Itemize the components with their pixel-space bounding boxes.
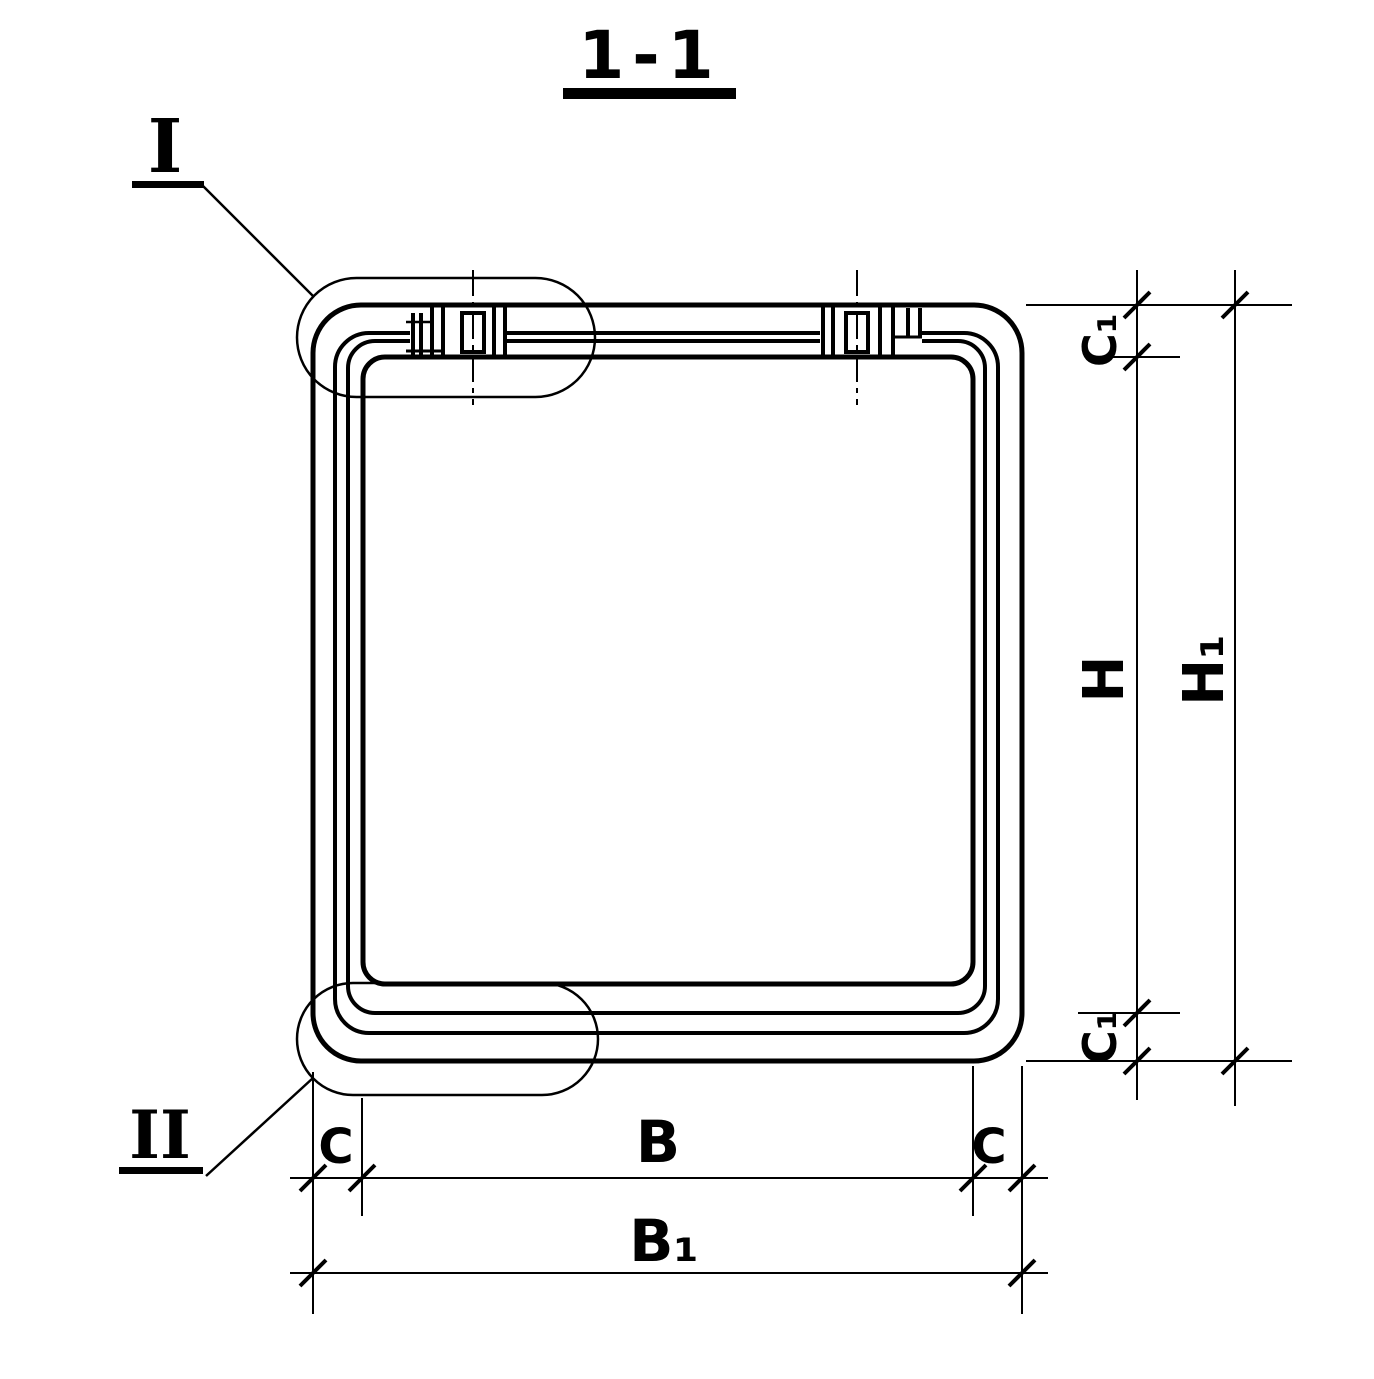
dim-label-h1: H₁	[1172, 634, 1237, 705]
width-dimensions	[290, 1066, 1048, 1314]
detail-ii-leader-line	[206, 1078, 313, 1176]
detail-i-leader-line	[202, 185, 313, 296]
detail-i-underline	[132, 181, 204, 188]
outer-contour	[313, 305, 1022, 1061]
detail-boundaries	[297, 278, 598, 1095]
joint-centerlines	[473, 270, 857, 405]
callout-detail-i: I	[132, 104, 313, 296]
dim-label-c-left: C	[318, 1119, 353, 1175]
joint-groove-line-inner	[348, 341, 985, 1013]
detail-ii-label: II	[129, 1096, 191, 1174]
height-dimensions	[1026, 270, 1292, 1106]
dim-label-c1-bottom: C₁	[1073, 1010, 1127, 1064]
box-contour-rings	[313, 305, 1022, 1061]
dim-label-c1-top: C₁	[1073, 313, 1127, 367]
dim-label-b1: B₁	[629, 1207, 699, 1275]
dim-label-c-right: C	[971, 1119, 1006, 1175]
top-slab-joint-right	[820, 307, 922, 357]
callout-detail-ii: II	[119, 1078, 313, 1176]
top-slab-joint-left	[406, 307, 507, 357]
dim-label-b: B	[636, 1108, 680, 1176]
culvert-section-drawing: I II 1-1 C₁ H H₁ C₁	[0, 0, 1374, 1379]
section-drawing-sheet: I II 1-1 C₁ H H₁ C₁	[0, 0, 1374, 1379]
width-dimension-labels: C B C B₁	[318, 1108, 1006, 1275]
height-dimension-labels: C₁ H H₁ C₁	[1072, 313, 1237, 1064]
detail-boundary-ii	[297, 983, 598, 1095]
section-title: 1-1	[578, 17, 721, 94]
inner-contour	[363, 357, 973, 984]
dim-label-h: H	[1072, 656, 1137, 703]
detail-ii-underline	[119, 1167, 203, 1174]
section-title-underline	[563, 88, 736, 99]
section-title-group: 1-1	[563, 17, 736, 99]
joint-groove-line-outer	[335, 333, 998, 1033]
detail-i-label: I	[148, 104, 183, 190]
